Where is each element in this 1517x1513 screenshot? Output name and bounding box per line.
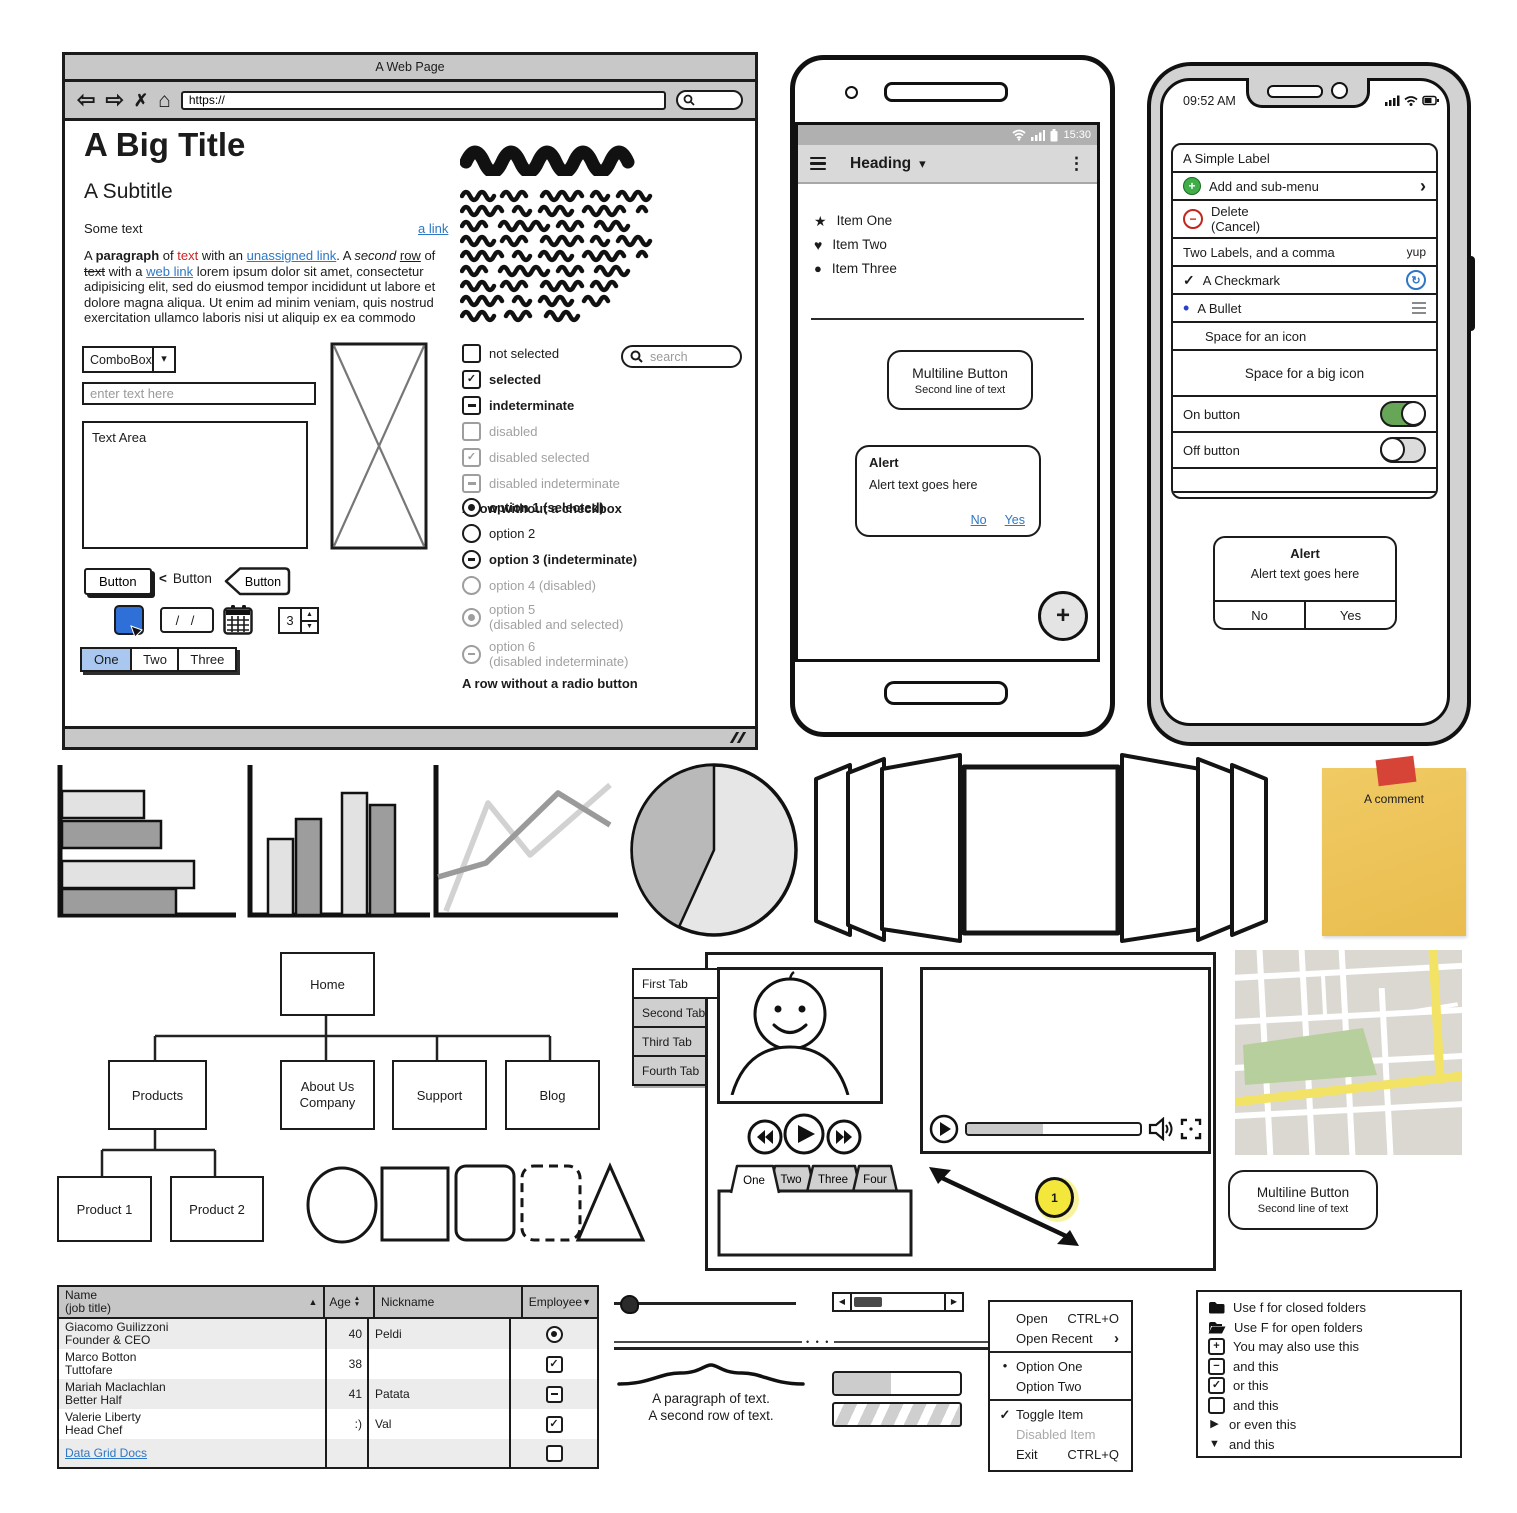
sitemap-node-support[interactable]: Support bbox=[392, 1060, 487, 1130]
browser-search-pill[interactable] bbox=[676, 90, 743, 110]
browser-titlebar: A Web Page bbox=[65, 55, 755, 82]
shapes-strip bbox=[300, 1158, 655, 1250]
table-row[interactable]: Marco BottonTuttofare 38 ✓ bbox=[59, 1349, 597, 1379]
iphone-time: 09:52 AM bbox=[1183, 94, 1236, 108]
check-icon: ✓ bbox=[1183, 273, 1195, 287]
button-line1: Multiline Button bbox=[912, 365, 1008, 381]
android-time: 15:30 bbox=[1063, 129, 1091, 141]
multiline-button[interactable]: Multiline Button Second line of text bbox=[1228, 1170, 1378, 1230]
checkbox-list: not selected ✓selected indeterminate dis… bbox=[462, 344, 622, 516]
para-text: . A bbox=[336, 248, 354, 263]
row-label: Space for an icon bbox=[1205, 329, 1306, 344]
textarea[interactable]: Text Area bbox=[82, 421, 308, 549]
chevron-left-icon: < bbox=[159, 572, 167, 586]
menu-separator bbox=[990, 1351, 1131, 1353]
triangle-left-icon: ◀ bbox=[839, 1298, 845, 1306]
camera-icon bbox=[845, 86, 858, 99]
android-multiline-button[interactable]: Multiline Button Second line of text bbox=[887, 350, 1033, 410]
row-label: An empty row bbox=[1203, 499, 1282, 500]
closed-folder-icon bbox=[1208, 1300, 1225, 1315]
home-button-icon[interactable] bbox=[884, 681, 1008, 705]
row-checkmark[interactable]: ✓ A Checkmark ↻ bbox=[1173, 265, 1436, 293]
para-bold: paragraph bbox=[96, 248, 160, 263]
menu-separator bbox=[990, 1399, 1131, 1401]
forward-icon[interactable]: ⇨ bbox=[105, 89, 123, 111]
alert-text: Alert text goes here bbox=[1215, 567, 1395, 581]
divider bbox=[811, 318, 1084, 320]
button-line2: Second line of text bbox=[1258, 1203, 1349, 1215]
checkbox-indeterminate[interactable] bbox=[546, 1386, 563, 1403]
alert-yes-button[interactable]: Yes bbox=[1306, 602, 1395, 628]
alert-no-label: No bbox=[1251, 608, 1268, 623]
checkbox-disabled: disabled bbox=[462, 422, 622, 441]
sort-desc-icon: ▼ bbox=[582, 1298, 591, 1307]
stepper-value: 3 bbox=[280, 613, 300, 628]
toggle-on[interactable] bbox=[1380, 401, 1426, 427]
table-row[interactable]: Mariah MaclachlanBetter Half 41 Patata bbox=[59, 1379, 597, 1409]
android-phone: 15:30 Heading ▾ ⋮ ★Item One ♥Item Two ●I… bbox=[790, 55, 1115, 737]
browser-statusbar bbox=[65, 726, 755, 747]
android-alert: Alert Alert text goes here No Yes bbox=[855, 445, 1041, 537]
row-label: A Bullet bbox=[1197, 301, 1241, 316]
para-red-text: text bbox=[177, 248, 198, 263]
row-add-submenu[interactable]: + Add and sub-menu › bbox=[1173, 171, 1436, 199]
image-placeholder bbox=[330, 342, 428, 550]
iphone-alert: Alert Alert text goes here No Yes bbox=[1213, 536, 1397, 630]
earpiece-icon bbox=[1267, 85, 1323, 98]
row-simple-label[interactable]: A Simple Label bbox=[1173, 145, 1436, 171]
chevron-down-icon: ▾ bbox=[161, 354, 167, 365]
minus-icon: − bbox=[1213, 1361, 1219, 1372]
checkbox-label: disabled selected bbox=[489, 450, 589, 465]
number-badge: 1 bbox=[1035, 1177, 1074, 1218]
node-label: Product 2 bbox=[189, 1202, 245, 1217]
kebab-menu-icon[interactable]: ⋮ bbox=[1068, 155, 1085, 172]
list-item[interactable]: ♥Item Two bbox=[814, 237, 897, 252]
fullscreen-icon[interactable] bbox=[1180, 1118, 1202, 1140]
tree-label: or even this bbox=[1229, 1417, 1296, 1432]
cell-age: 41 bbox=[349, 1387, 362, 1401]
tree-label: Use _ for a file icon bbox=[1231, 1456, 1342, 1458]
search-icon bbox=[683, 94, 695, 106]
menu-shortcut: CTRL+O bbox=[1067, 1311, 1119, 1326]
resize-grip-icon[interactable] bbox=[731, 732, 747, 743]
tab-label: Third Tab bbox=[642, 1035, 692, 1049]
bullet-icon: ● bbox=[1003, 1362, 1008, 1370]
checkbox-label: selected bbox=[489, 372, 541, 387]
check-icon: ✓ bbox=[549, 1419, 558, 1430]
sort-asc-icon: ▲ bbox=[308, 1298, 317, 1307]
checkbox-selected[interactable]: ✓selected bbox=[462, 370, 622, 389]
radio-selected[interactable] bbox=[546, 1326, 563, 1343]
checkbox-unchecked[interactable] bbox=[546, 1445, 563, 1462]
arrow-button-label: Button bbox=[245, 575, 281, 589]
radio-label: option 3 (indeterminate) bbox=[489, 552, 637, 567]
scroll-left-button[interactable]: ◀ bbox=[834, 1294, 852, 1310]
header-label: Employee bbox=[529, 1295, 582, 1309]
cell-job: Better Half bbox=[65, 1394, 319, 1407]
header-label2: (job title) bbox=[65, 1302, 111, 1315]
tab-three[interactable]: Three bbox=[177, 647, 237, 672]
tab-label: Three bbox=[190, 652, 224, 667]
some-text: Some text bbox=[84, 221, 143, 236]
iphone-screen: 09:52 AM A Simple Label + Add and sub-me… bbox=[1160, 78, 1450, 726]
text-input[interactable] bbox=[82, 382, 316, 405]
sort-both-icon: ▼ bbox=[354, 1302, 360, 1309]
webcam-view bbox=[717, 967, 883, 1104]
list-item-label: Item One bbox=[837, 213, 893, 228]
a-link[interactable]: a link bbox=[418, 221, 448, 236]
row-label: Two Labels, and a comma bbox=[1183, 245, 1335, 260]
pie-chart bbox=[628, 762, 800, 940]
button-line1: Multiline Button bbox=[1257, 1185, 1349, 1200]
home-icon[interactable]: ⌂ bbox=[158, 90, 171, 111]
row-label: A Checkmark bbox=[1203, 273, 1280, 288]
para-text: A bbox=[84, 248, 96, 263]
tab-label: One bbox=[94, 652, 119, 667]
slider bbox=[614, 1294, 796, 1312]
folder-tab-label: Four bbox=[863, 1174, 887, 1186]
tree-item-plus[interactable]: +You may also use this bbox=[1208, 1337, 1450, 1357]
browser-toolbar: ⇦ ⇨ ✗ ⌂ bbox=[65, 82, 755, 121]
combobox-button[interactable]: ▾ bbox=[152, 348, 174, 371]
url-input[interactable] bbox=[181, 91, 666, 110]
calendar-icon[interactable] bbox=[222, 604, 254, 636]
para-italic: second bbox=[354, 248, 396, 263]
delete-icon: − bbox=[1183, 209, 1203, 229]
web-link[interactable]: web link bbox=[146, 264, 193, 279]
para-text: with a bbox=[105, 264, 146, 279]
circle-shape bbox=[308, 1168, 376, 1242]
paragraph-line1: A paragraph of text. bbox=[616, 1390, 806, 1407]
checkbox-checked[interactable]: ✓ bbox=[546, 1416, 563, 1433]
tab-bar: One Two Three bbox=[80, 647, 237, 672]
tab-label: Fourth Tab bbox=[642, 1064, 699, 1078]
progress-bar-indeterminate bbox=[832, 1402, 962, 1427]
menu-item-toggle[interactable]: ✓Toggle Item bbox=[990, 1404, 1131, 1424]
iphone-table: A Simple Label + Add and sub-menu › − De… bbox=[1171, 143, 1438, 499]
cell-nickname: Patata bbox=[375, 1387, 410, 1401]
alert-yes-button[interactable]: Yes bbox=[1005, 513, 1025, 527]
radio-label2: (disabled indeterminate) bbox=[489, 654, 628, 669]
menu-item-option-one[interactable]: ●Option One bbox=[990, 1356, 1131, 1376]
context-menu: OpenCTRL+O Open Recent› ●Option One Opti… bbox=[988, 1300, 1133, 1472]
menu-label: Open bbox=[1016, 1311, 1048, 1326]
list-item[interactable]: ●Item Three bbox=[814, 261, 897, 276]
tree-item-closed-folder[interactable]: Use f for closed folders bbox=[1208, 1298, 1450, 1318]
video-player bbox=[920, 967, 1211, 1154]
grid-header-name[interactable]: Name(job title) ▲ bbox=[59, 1287, 325, 1317]
radio-option-4: option 4 (disabled) bbox=[462, 576, 638, 595]
sitemap-node-product2[interactable]: Product 2 bbox=[170, 1176, 264, 1242]
link-button-label: Button bbox=[173, 571, 212, 586]
row-on-button[interactable]: On button bbox=[1173, 395, 1436, 431]
progress-bar bbox=[832, 1371, 962, 1396]
alert-no-button[interactable]: No bbox=[971, 513, 987, 527]
radio-label: option 1 (selected) bbox=[489, 500, 604, 515]
sitemap-node-product1[interactable]: Product 1 bbox=[57, 1176, 152, 1242]
radio-label: option 5 bbox=[489, 602, 623, 617]
paragraph-line2: A second row of text. bbox=[616, 1407, 806, 1424]
button-line2: Second line of text bbox=[915, 384, 1006, 396]
slider-knob[interactable] bbox=[620, 1295, 639, 1314]
tree-label: and this bbox=[1233, 1359, 1279, 1374]
tree-item-unchecked[interactable]: and this bbox=[1208, 1396, 1450, 1416]
tab-two[interactable]: Two bbox=[130, 647, 180, 672]
fab-button[interactable]: + bbox=[1038, 591, 1088, 641]
table-row[interactable]: Data Grid Docs bbox=[59, 1439, 597, 1467]
volume-icon[interactable] bbox=[1148, 1117, 1174, 1141]
header-label: Nickname bbox=[381, 1295, 434, 1309]
cell-job: Head Chef bbox=[65, 1424, 319, 1437]
scroll-thumb[interactable] bbox=[854, 1297, 882, 1307]
android-heading-dropdown[interactable]: Heading ▾ bbox=[850, 155, 926, 173]
sticky-note: A comment bbox=[1322, 768, 1466, 936]
arrow-button[interactable]: Button bbox=[223, 566, 293, 597]
node-label: Products bbox=[132, 1088, 183, 1103]
folder-tab-label: Two bbox=[780, 1174, 801, 1186]
radio-label: option 4 (disabled) bbox=[489, 578, 596, 593]
menu-label: Toggle Item bbox=[1016, 1407, 1083, 1422]
row-delete[interactable]: − Delete(Cancel) bbox=[1173, 199, 1436, 237]
file-icon bbox=[1208, 1456, 1223, 1458]
list-item[interactable]: ★Item One bbox=[814, 213, 897, 228]
map-image bbox=[1235, 950, 1462, 1155]
row-label: Off button bbox=[1183, 443, 1240, 458]
note-label: A comment bbox=[1322, 792, 1466, 806]
table-row[interactable]: Valerie LibertyHead Chef :) Val ✓ bbox=[59, 1409, 597, 1439]
content-search-pill[interactable] bbox=[621, 345, 742, 368]
node-label: Product 1 bbox=[77, 1202, 133, 1217]
row-label: Delete bbox=[1211, 204, 1260, 219]
para-strike: text bbox=[84, 264, 105, 279]
triangle-right-icon: ▶ bbox=[1208, 1419, 1221, 1430]
open-folder-icon bbox=[1208, 1320, 1226, 1335]
menu-item-open[interactable]: OpenCTRL+O bbox=[990, 1308, 1131, 1328]
notch bbox=[1246, 78, 1370, 108]
play-button[interactable] bbox=[929, 1114, 959, 1144]
sitemap-node-blog[interactable]: Blog bbox=[505, 1060, 600, 1130]
node-label: Home bbox=[310, 977, 345, 992]
stepper-up-icon[interactable]: ▲ bbox=[302, 609, 317, 620]
square-shape bbox=[382, 1168, 448, 1240]
cell-nickname: Peldi bbox=[375, 1327, 402, 1341]
search-input[interactable] bbox=[648, 349, 722, 365]
rounded-square-shape bbox=[456, 1166, 514, 1240]
line-chart bbox=[428, 763, 622, 928]
radio-option-1[interactable]: option 1 (selected) bbox=[462, 498, 638, 517]
tree-item-expanded[interactable]: ▼and this bbox=[1208, 1435, 1450, 1455]
checkbox-disabled-selected: ✓disabled selected bbox=[462, 448, 622, 467]
tree-pane: Use f for closed folders Use F for open … bbox=[1196, 1290, 1462, 1458]
video-progress-bar[interactable] bbox=[965, 1122, 1142, 1136]
dashed-square-shape bbox=[522, 1166, 580, 1240]
menu-shortcut: CTRL+Q bbox=[1067, 1447, 1119, 1462]
list-item-label: Item Three bbox=[832, 261, 897, 276]
check-icon: ✓ bbox=[1212, 1380, 1221, 1391]
browser-window-title: A Web Page bbox=[375, 60, 444, 74]
check-icon: ✓ bbox=[1000, 1408, 1011, 1421]
tree-item-collapsed[interactable]: ▶or even this bbox=[1208, 1415, 1450, 1435]
android-list: ★Item One ♥Item Two ●Item Three bbox=[814, 213, 897, 276]
android-screen: 15:30 Heading ▾ ⋮ ★Item One ♥Item Two ●I… bbox=[795, 122, 1100, 662]
cell-job: Tuttofare bbox=[65, 1364, 319, 1377]
alert-no-button[interactable]: No bbox=[1215, 602, 1306, 628]
check-icon: ✓ bbox=[467, 374, 476, 385]
cell-age: 38 bbox=[349, 1357, 362, 1371]
menu-label: Exit bbox=[1016, 1447, 1038, 1462]
row-label: Space for a big icon bbox=[1245, 366, 1364, 381]
signal-icon bbox=[1385, 96, 1400, 107]
scribble-paragraph bbox=[460, 188, 658, 330]
alert-yes-label: Yes bbox=[1340, 608, 1361, 623]
check-icon: ✓ bbox=[549, 1359, 558, 1370]
plus-icon: + bbox=[1213, 1341, 1219, 1352]
cell-age: :) bbox=[355, 1417, 362, 1431]
iphone-phone: 09:52 AM A Simple Label + Add and sub-me… bbox=[1147, 62, 1471, 746]
checkbox-not-selected[interactable]: not selected bbox=[462, 344, 622, 363]
radio-option-5: option 5(disabled and selected) bbox=[462, 602, 638, 632]
folder-body[interactable] bbox=[719, 1191, 911, 1255]
grid-header-nickname[interactable]: Nickname bbox=[375, 1287, 523, 1317]
triangle-down-icon: ▼ bbox=[1208, 1439, 1221, 1450]
tree-item-minus[interactable]: −and this bbox=[1208, 1357, 1450, 1377]
speaker-icon bbox=[884, 82, 1008, 102]
checkbox-label: disabled bbox=[489, 424, 537, 439]
node-label: Support bbox=[417, 1088, 463, 1103]
panel-content: One Two Three Four 1 bbox=[708, 955, 1207, 1262]
stepper-down-icon[interactable]: ▼ bbox=[302, 620, 317, 633]
checkbox-label: indeterminate bbox=[489, 398, 574, 413]
reorder-icon[interactable] bbox=[1412, 302, 1426, 315]
iphone-status-icons bbox=[1385, 94, 1439, 107]
sitemap-node-products[interactable]: Products bbox=[108, 1060, 207, 1130]
cover-flow bbox=[812, 748, 1272, 944]
menu-item-option-two[interactable]: Option Two bbox=[990, 1376, 1131, 1396]
tree-item-open-folder[interactable]: Use F for open folders bbox=[1208, 1318, 1450, 1338]
chevron-right-icon: › bbox=[1420, 177, 1426, 195]
radio-option-3[interactable]: option 3 (indeterminate) bbox=[462, 550, 638, 569]
caret-down-icon: ▾ bbox=[919, 157, 926, 170]
numeric-stepper[interactable]: 3 ▲ ▼ bbox=[278, 607, 319, 634]
radio-list: option 1 (selected) option 2 option 3 (i… bbox=[462, 498, 638, 691]
sitemap-node-home[interactable]: Home bbox=[280, 952, 375, 1016]
grid-header-age[interactable]: Age ▲▼ bbox=[325, 1287, 375, 1317]
row-space-icon[interactable]: Space for an icon bbox=[1173, 321, 1436, 349]
row-right-label: yup bbox=[1407, 245, 1426, 259]
tape-icon bbox=[1376, 756, 1417, 786]
tree-item-file[interactable]: Use _ for a file icon bbox=[1208, 1454, 1450, 1458]
date-field[interactable]: / / bbox=[160, 607, 214, 633]
front-camera-icon bbox=[1331, 82, 1348, 99]
scroll-right-button[interactable]: ▶ bbox=[944, 1294, 962, 1310]
browser-content: A Big Title A Subtitle Some text a link … bbox=[65, 118, 755, 729]
textarea-label: Text Area bbox=[84, 423, 306, 452]
row-label: On button bbox=[1183, 407, 1240, 422]
menu-item-open-recent[interactable]: Open Recent› bbox=[990, 1328, 1131, 1348]
tree-label: You may also use this bbox=[1233, 1339, 1359, 1354]
tab-first[interactable]: First Tab bbox=[632, 968, 720, 999]
row-label: Add and sub-menu bbox=[1209, 179, 1319, 194]
data-grid-docs-link[interactable]: Data Grid Docs bbox=[65, 1446, 147, 1460]
tab-one[interactable]: One bbox=[80, 647, 133, 672]
radio-option-2[interactable]: option 2 bbox=[462, 524, 638, 543]
row-two-labels[interactable]: Two Labels, and a commayup bbox=[1173, 237, 1436, 265]
tree-label: and this bbox=[1233, 1398, 1279, 1413]
menu-label: Option Two bbox=[1016, 1379, 1082, 1394]
combobox[interactable]: ComboBox ▾ bbox=[82, 346, 176, 373]
horizontal-bar-chart bbox=[50, 763, 240, 928]
row-off-button[interactable]: Off button bbox=[1173, 431, 1436, 467]
scribble-title bbox=[460, 144, 645, 176]
default-button[interactable]: Button bbox=[84, 568, 152, 595]
menu-label: Option One bbox=[1016, 1359, 1083, 1374]
para-underline: row bbox=[400, 248, 421, 263]
tree-item-checked[interactable]: ✓or this bbox=[1208, 1376, 1450, 1396]
sitemap-node-about[interactable]: About UsCompany bbox=[280, 1060, 375, 1130]
plus-icon: + bbox=[1056, 604, 1070, 628]
hamburger-icon[interactable] bbox=[810, 157, 826, 171]
paragraph-block: A paragraph of text with an unassigned l… bbox=[84, 248, 448, 326]
menu-item-exit[interactable]: ExitCTRL+Q bbox=[990, 1444, 1131, 1464]
row-space-big-icon[interactable]: Space for a big icon bbox=[1173, 349, 1436, 395]
splitter[interactable]: • • • bbox=[614, 1338, 1044, 1352]
row-bullet[interactable]: • A Bullet bbox=[1173, 293, 1436, 321]
row-label: A Simple Label bbox=[1183, 151, 1270, 166]
stop-icon[interactable]: ✗ bbox=[134, 92, 148, 109]
sync-icon[interactable]: ↻ bbox=[1406, 270, 1426, 290]
check-icon: ✓ bbox=[467, 452, 476, 463]
back-icon[interactable]: ⇦ bbox=[77, 89, 95, 111]
para-text: of bbox=[159, 248, 177, 263]
cell-age: 40 bbox=[349, 1327, 362, 1341]
list-item-label: Item Two bbox=[832, 237, 887, 252]
radio-label2: (disabled and selected) bbox=[489, 617, 623, 632]
battery-icon bbox=[1050, 129, 1058, 142]
grid-header-employee[interactable]: Employee▼ bbox=[523, 1287, 597, 1317]
node-label: Blog bbox=[539, 1088, 565, 1103]
link-button[interactable]: < Button bbox=[159, 571, 212, 586]
row-empty-row[interactable]: ✓ An empty row (above) bbox=[1173, 491, 1436, 499]
tab-label: First Tab bbox=[642, 977, 688, 991]
radio-option-6: option 6(disabled indeterminate) bbox=[462, 639, 638, 669]
battery-icon bbox=[1423, 97, 1439, 105]
radio-label: option 6 bbox=[489, 639, 628, 654]
checkbox-label: disabled indeterminate bbox=[489, 476, 620, 491]
para-text: with an bbox=[198, 248, 246, 263]
checkbox-disabled-indeterminate: disabled indeterminate bbox=[462, 474, 622, 493]
unassigned-link[interactable]: unassigned link bbox=[247, 248, 337, 263]
search-icon bbox=[630, 350, 643, 363]
toggle-off[interactable] bbox=[1380, 437, 1426, 463]
star-icon: ★ bbox=[814, 214, 827, 228]
android-heading: Heading bbox=[850, 155, 911, 173]
person-icon bbox=[720, 970, 874, 1095]
wifi-icon bbox=[1405, 97, 1417, 106]
table-row[interactable]: Giacomo GuilizzoniFounder & CEO 40 Peldi bbox=[59, 1319, 597, 1349]
folder-tabs: One Two Three Four bbox=[715, 1160, 915, 1260]
vertical-bar-chart bbox=[242, 763, 434, 928]
checkbox-indeterminate[interactable]: indeterminate bbox=[462, 396, 622, 415]
side-button[interactable] bbox=[1467, 256, 1475, 331]
tree-label: Use F for open folders bbox=[1234, 1320, 1363, 1335]
row-empty[interactable] bbox=[1173, 467, 1436, 491]
splitter-grip-icon: • • • bbox=[802, 1337, 834, 1347]
checkbox-checked[interactable]: ✓ bbox=[546, 1356, 563, 1373]
color-picker[interactable] bbox=[114, 605, 144, 635]
submenu-chevron-icon: › bbox=[1114, 1331, 1119, 1346]
row-label2: (Cancel) bbox=[1211, 219, 1260, 234]
